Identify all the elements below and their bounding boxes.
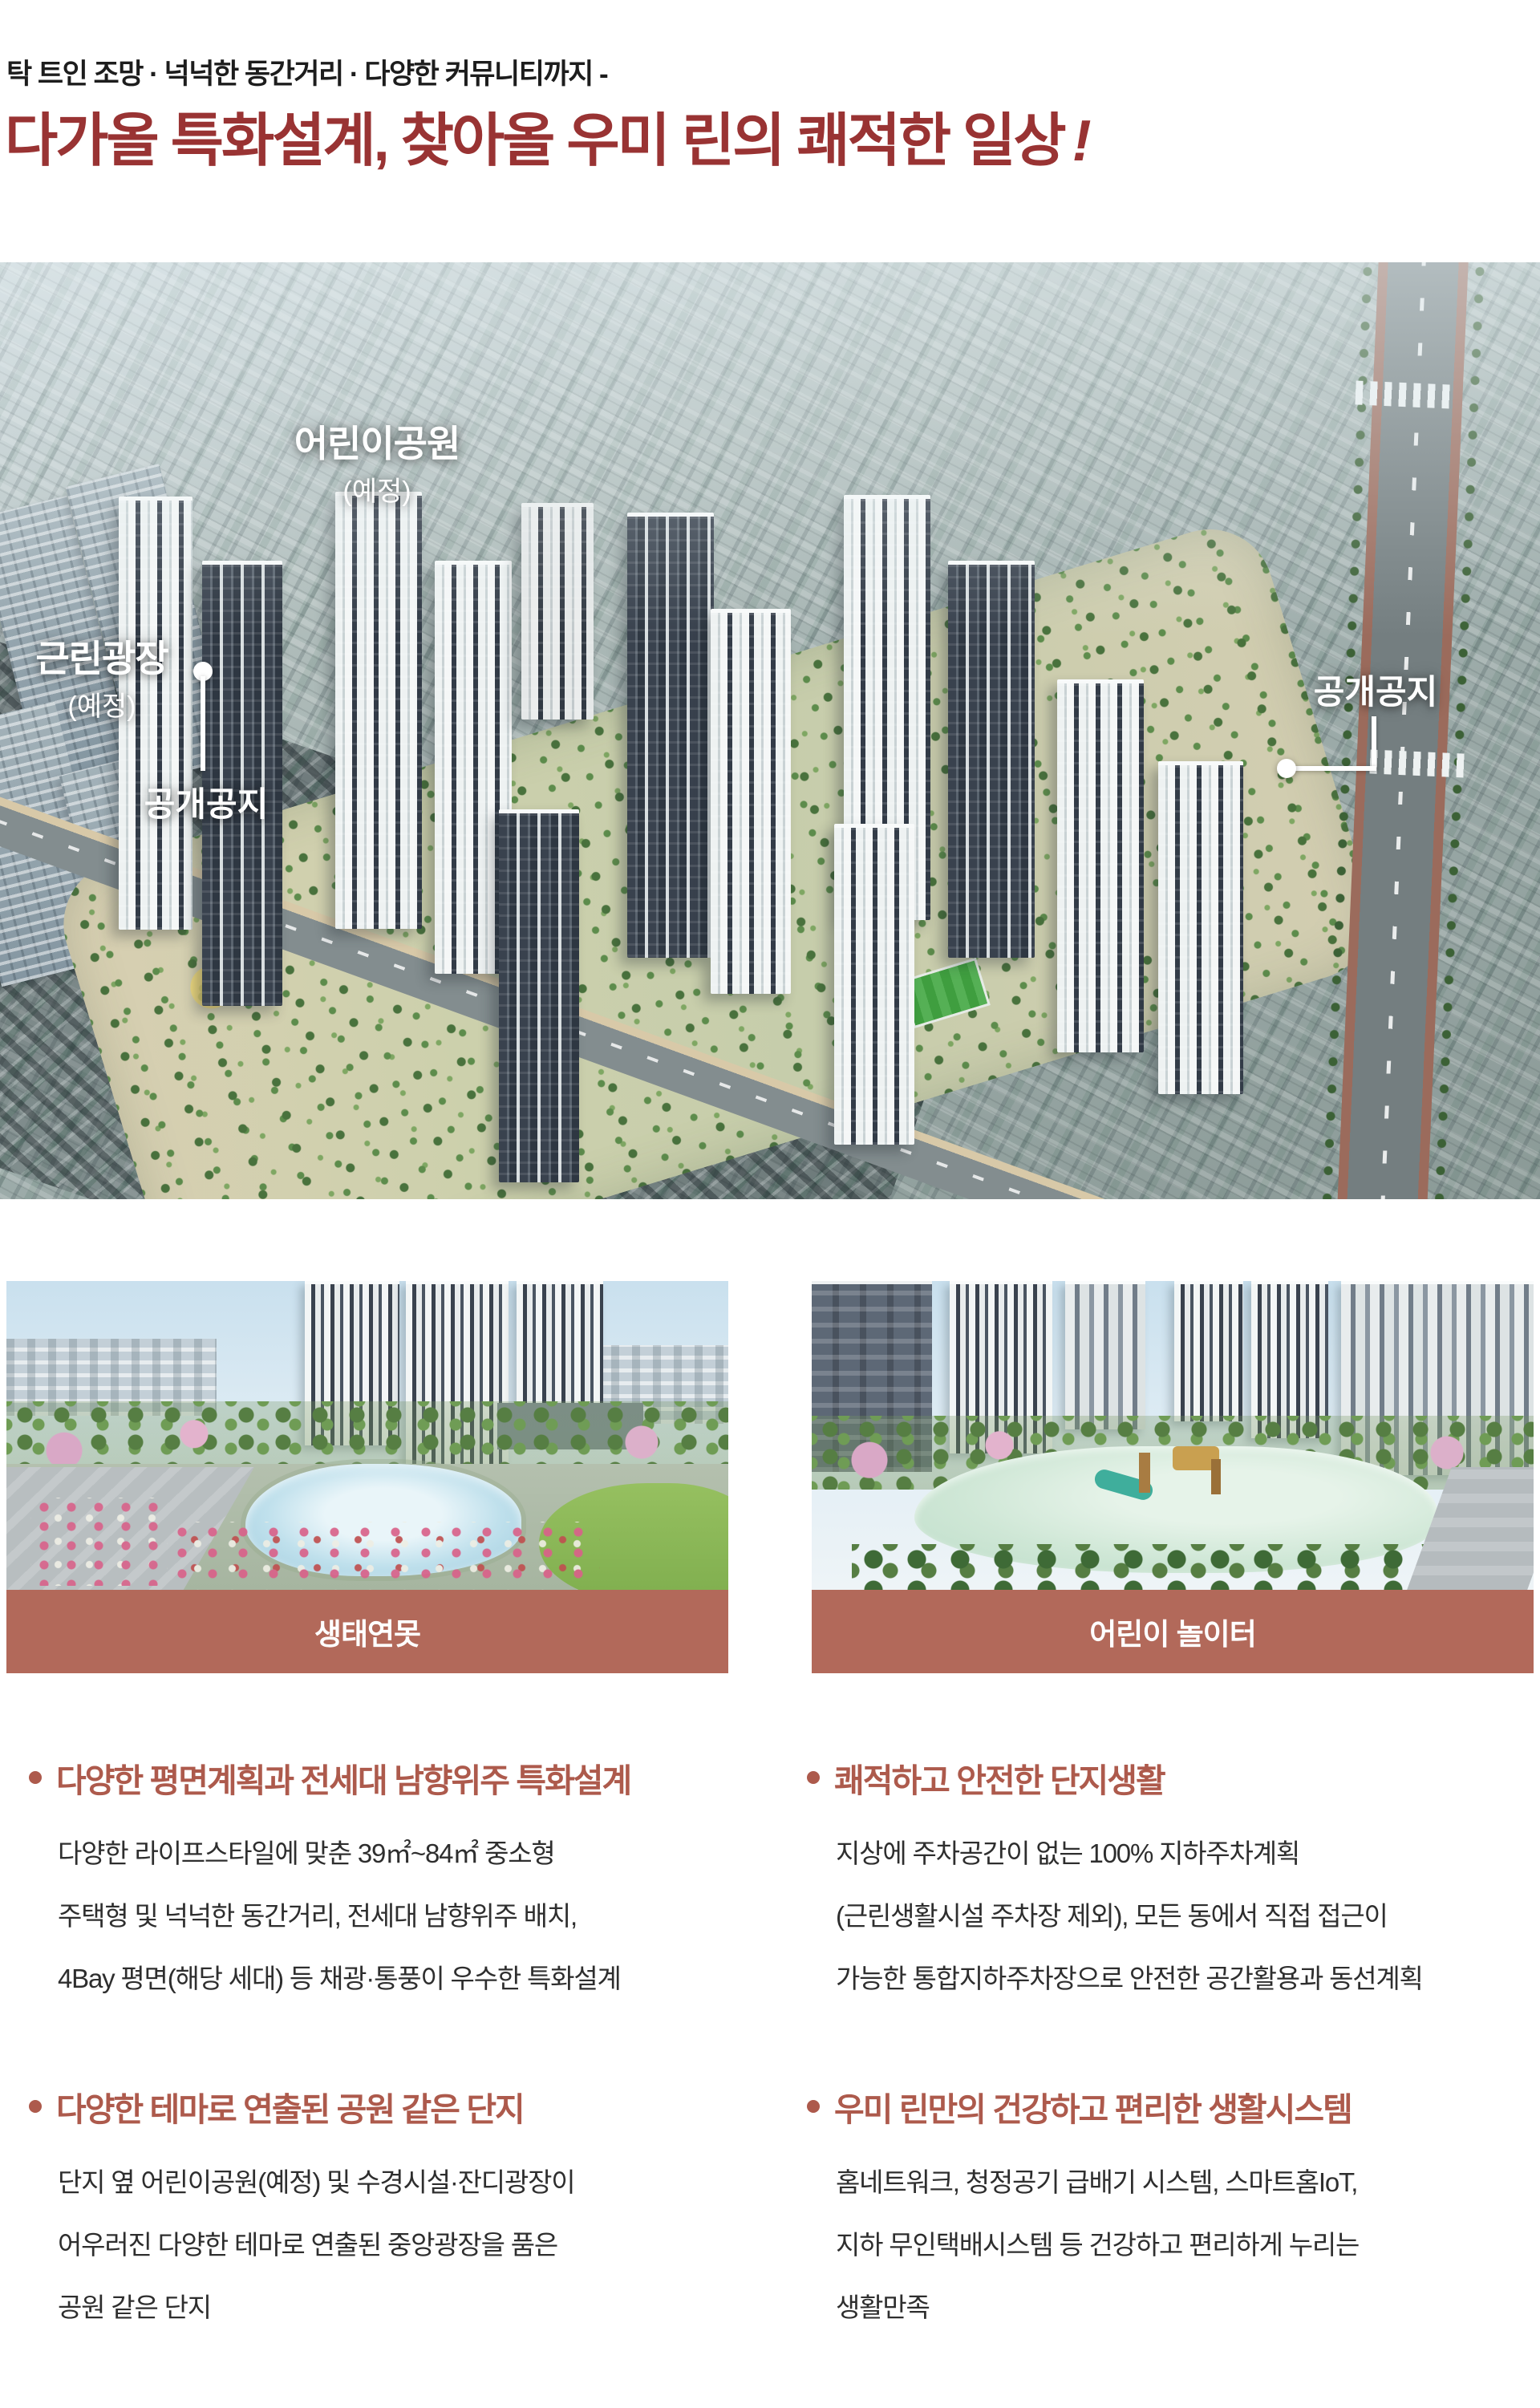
page-title: 다가올 특화설계, 찾아올 우미 린의 쾌적한 일상! bbox=[5, 93, 1089, 177]
feature-body-line: 어우러진 다양한 테마로 연출된 중앙광장을 품은 bbox=[58, 2214, 783, 2276]
crosswalk bbox=[1369, 749, 1465, 777]
flower-bed bbox=[167, 1522, 600, 1590]
bullet-icon bbox=[29, 2100, 42, 2113]
feature-heading: 쾌적하고 안전한 단지생활 bbox=[807, 1753, 1540, 1802]
feature-section-living-system: 우미 린만의 건강하고 편리한 생활시스템 홈네트워크, 청정공기 급배기 시스… bbox=[807, 2082, 1540, 2339]
apartment-tower bbox=[1251, 1281, 1328, 1438]
feature-heading-text: 쾌적하고 안전한 단지생활 bbox=[834, 1753, 1165, 1802]
marker-line bbox=[1288, 766, 1376, 771]
bullet-icon bbox=[807, 1771, 820, 1784]
feature-body-line: (근린생활시설 주차장 제외), 모든 동에서 직접 접근이 bbox=[836, 1885, 1540, 1948]
feature-heading-text: 우미 린만의 건강하고 편리한 생활시스템 bbox=[834, 2082, 1352, 2130]
feature-body-line: 가능한 통합지하주차장으로 안전한 공간활용과 동선계획 bbox=[836, 1948, 1540, 2010]
photo-caption-playground: 어린이 놀이터 bbox=[812, 1590, 1534, 1673]
photo-eco-pond: 생태연못 bbox=[6, 1281, 728, 1673]
feature-body-line: 공원 같은 단지 bbox=[58, 2276, 783, 2339]
crosswalk bbox=[1355, 380, 1450, 408]
eco-pond-scene bbox=[6, 1281, 728, 1590]
feature-body-line: 홈네트워크, 청정공기 급배기 시스템, 스마트홈IoT, bbox=[836, 2151, 1540, 2214]
label-neighborhood-plaza-title: 근린광장 bbox=[10, 630, 194, 683]
play-structure bbox=[1139, 1453, 1150, 1493]
flower-bed bbox=[30, 1498, 175, 1586]
feature-body-line: 4Bay 평면(해당 세대) 등 채광·통풍이 우수한 특화설계 bbox=[58, 1948, 783, 2010]
feature-body-line: 주택형 및 넉넉한 동간거리, 전세대 남향위주 배치, bbox=[58, 1885, 783, 1948]
page-title-text: 다가올 특화설계, 찾아올 우미 린의 쾌적한 일상 bbox=[5, 109, 1064, 173]
marker-line bbox=[1372, 716, 1376, 769]
feature-heading-text: 다양한 테마로 연출된 공원 같은 단지 bbox=[56, 2082, 524, 2130]
marker-dot-icon bbox=[1277, 759, 1296, 778]
apartment-tower bbox=[1057, 679, 1144, 1052]
apartment-tower bbox=[499, 809, 579, 1182]
feature-section-floorplan: 다양한 평면계획과 전세대 남향위주 특화설계 다양한 라이프스타일에 맞춘 3… bbox=[29, 1753, 783, 2010]
feature-body-line: 다양한 라이프스타일에 맞춘 39㎡~84㎡ 중소형 bbox=[58, 1822, 783, 1885]
page-title-exclamation: ! bbox=[1072, 109, 1089, 173]
apartment-tower bbox=[1158, 761, 1243, 1094]
apartment-tower bbox=[627, 513, 714, 958]
feature-heading: 다양한 테마로 연출된 공원 같은 단지 bbox=[29, 2082, 783, 2130]
play-structure bbox=[1211, 1459, 1221, 1494]
label-open-space-left: 공개공지 bbox=[110, 777, 302, 826]
feature-body: 다양한 라이프스타일에 맞춘 39㎡~84㎡ 중소형 주택형 및 넉넉한 동간거… bbox=[58, 1822, 783, 2010]
feature-body-line: 생활만족 bbox=[836, 2276, 1540, 2339]
apartment-tower bbox=[335, 492, 422, 929]
label-open-space-right: 공개공지 bbox=[1279, 665, 1472, 714]
feature-heading-text: 다양한 평면계획과 전세대 남향위주 특화설계 bbox=[56, 1753, 630, 1802]
playground-scene bbox=[812, 1281, 1534, 1590]
label-children-park-title: 어린이공원 bbox=[265, 415, 489, 468]
bullet-icon bbox=[807, 2100, 820, 2113]
apartment-tower bbox=[834, 824, 914, 1145]
apartment-tower bbox=[521, 503, 594, 720]
label-children-park: 어린이공원 (예정) bbox=[265, 415, 489, 509]
feature-heading: 우미 린만의 건강하고 편리한 생활시스템 bbox=[807, 2082, 1540, 2130]
promo-page: 탁 트인 조망 · 넉넉한 동간거리 · 다양한 커뮤니티까지 - 다가올 특화… bbox=[0, 0, 1540, 2408]
feature-body-line: 지하 무인택배시스템 등 건강하고 편리하게 누리는 bbox=[836, 2214, 1540, 2276]
label-children-park-sub: (예정) bbox=[265, 469, 489, 509]
feature-body: 단지 옆 어린이공원(예정) 및 수경시설·잔디광장이 어우러진 다양한 테마로… bbox=[58, 2151, 783, 2339]
photo-caption-eco-pond: 생태연못 bbox=[6, 1590, 728, 1673]
apartment-tower bbox=[948, 561, 1035, 958]
marker-line bbox=[201, 676, 205, 771]
label-neighborhood-plaza-sub: (예정) bbox=[10, 684, 194, 724]
feature-body-line: 단지 옆 어린이공원(예정) 및 수경시설·잔디광장이 bbox=[58, 2151, 783, 2214]
apartment-tower bbox=[1065, 1281, 1145, 1429]
feature-section-parking: 쾌적하고 안전한 단지생활 지상에 주차공간이 없는 100% 지하주차계획 (… bbox=[807, 1753, 1540, 2010]
label-neighborhood-plaza: 근린광장 (예정) bbox=[10, 630, 194, 724]
photo-playground: 어린이 놀이터 bbox=[812, 1281, 1534, 1673]
feature-section-park: 다양한 테마로 연출된 공원 같은 단지 단지 옆 어린이공원(예정) 및 수경… bbox=[29, 2082, 783, 2339]
apartment-tower bbox=[1174, 1281, 1243, 1421]
apartment-tower bbox=[711, 609, 791, 994]
aerial-render-image: 어린이공원 (예정) 근린광장 (예정) 공개공지 공개공지 bbox=[0, 262, 1540, 1199]
feature-body: 홈네트워크, 청정공기 급배기 시스템, 스마트홈IoT, 지하 무인택배시스템… bbox=[836, 2151, 1540, 2339]
bullet-icon bbox=[29, 1771, 42, 1784]
feature-heading: 다양한 평면계획과 전세대 남향위주 특화설계 bbox=[29, 1753, 783, 1802]
eyebrow-text: 탁 트인 조망 · 넉넉한 동간거리 · 다양한 커뮤니티까지 - bbox=[6, 51, 607, 92]
feature-body: 지상에 주차공간이 없는 100% 지하주차계획 (근린생활시설 주차장 제외)… bbox=[836, 1822, 1540, 2010]
feature-body-line: 지상에 주차공간이 없는 100% 지하주차계획 bbox=[836, 1822, 1540, 1885]
shrub-row bbox=[852, 1544, 1493, 1590]
